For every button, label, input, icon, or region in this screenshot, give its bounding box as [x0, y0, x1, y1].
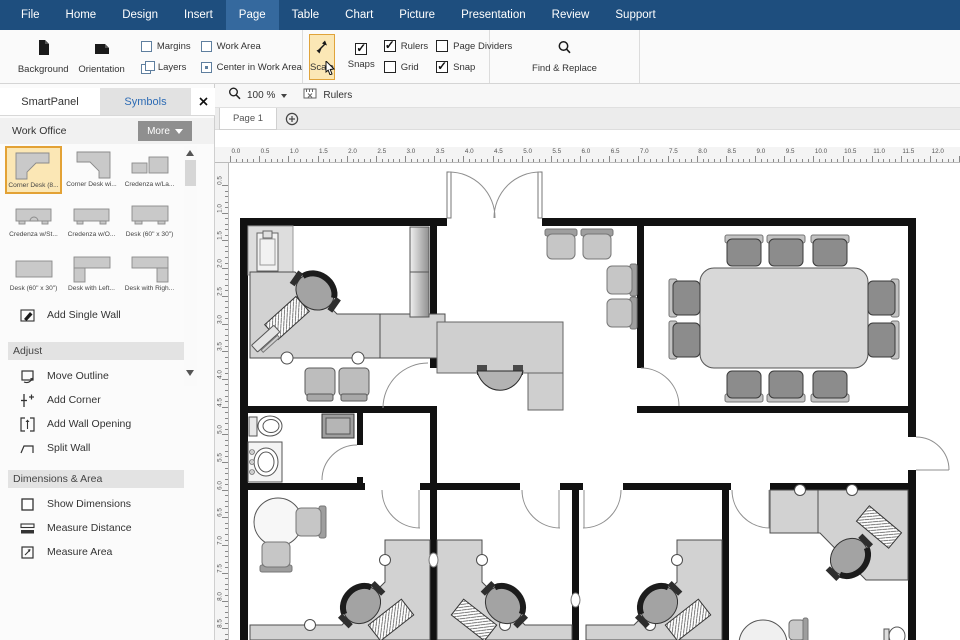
tab-smartpanel[interactable]: SmartPanel — [0, 88, 100, 115]
conference-chair — [767, 371, 805, 402]
conference-table — [700, 268, 868, 368]
symbol-desk-60x30-b[interactable]: Desk (60" x 30") — [5, 250, 62, 298]
ruler-tick — [222, 601, 229, 602]
zoom-level[interactable]: 100 % — [247, 90, 275, 101]
office-door-arc — [383, 363, 428, 408]
ruler-tick — [901, 156, 902, 163]
ruler-label: 10.0 — [815, 148, 827, 155]
office-top-left[interactable] — [248, 226, 445, 401]
ruler-tick — [259, 156, 260, 163]
tall-cabinet — [410, 272, 429, 317]
split-wall-button[interactable]: Split Wall — [0, 436, 215, 460]
ruler-label: 4.5 — [494, 148, 503, 155]
menu-page[interactable]: Page — [226, 0, 279, 30]
layers-button[interactable]: Layers — [141, 60, 191, 75]
symbol-credenza-lateral[interactable]: Credenza w/La... — [121, 146, 178, 194]
ruler-label: 7.5 — [669, 148, 678, 155]
grid-toggle[interactable]: Grid — [384, 60, 428, 75]
fixture — [884, 629, 889, 640]
rulers-toggle[interactable]: Rulers — [384, 39, 428, 54]
symbol-thumb — [71, 199, 113, 231]
ruler-tick — [784, 156, 785, 163]
search-icon — [557, 40, 572, 60]
zoom-toolbar: 100 % Rulers — [215, 84, 960, 108]
page-tab-bar: Page 1 — [215, 108, 960, 130]
room3-door-arc — [583, 490, 621, 528]
ruler-tick — [318, 156, 319, 163]
reception-desk — [437, 322, 563, 373]
ruler-label: 8.0 — [698, 148, 707, 155]
reception-area[interactable] — [437, 229, 637, 410]
ruler-label: 11.5 — [902, 148, 914, 155]
conference-chair — [811, 371, 849, 402]
room4-door-arc — [732, 490, 770, 528]
zoom-magnifier-icon[interactable] — [228, 87, 241, 105]
measure-area-icon — [20, 545, 35, 560]
office-bottom-right-extras[interactable] — [739, 618, 905, 640]
page-tab-1[interactable]: Page 1 — [219, 108, 277, 130]
menu-table[interactable]: Table — [279, 0, 333, 30]
room1-door-arc — [382, 490, 420, 528]
symbol-thumb — [129, 253, 171, 285]
waiting-chair — [607, 264, 637, 296]
ruler-tick — [580, 156, 581, 163]
toilet — [258, 416, 282, 436]
ruler-label: 10.5 — [844, 148, 856, 155]
conference-chair — [725, 235, 763, 266]
drawing-canvas-area: 100 % Rulers Page 1 0.00.51.01.52.02.53.… — [215, 84, 960, 640]
measure-distance-button[interactable]: Measure Distance — [0, 516, 215, 540]
ruler-tick — [930, 156, 931, 163]
menu-support[interactable]: Support — [602, 0, 668, 30]
rulers-checkbox[interactable] — [384, 40, 396, 52]
ruler-tick — [222, 268, 229, 269]
rulers-toolbar-label[interactable]: Rulers — [323, 90, 352, 101]
chair — [296, 506, 326, 538]
left-panel: SmartPanel Symbols Work Office More Corn… — [0, 84, 215, 640]
adjust-section-header: Adjust — [8, 342, 184, 360]
round-table — [739, 620, 787, 640]
ruler-label: 6.0 — [582, 148, 591, 155]
ruler-tick — [551, 156, 552, 163]
ruler-label: 1.0 — [290, 148, 299, 155]
center-in-work-area-icon — [201, 62, 212, 73]
symbol-thumb — [129, 199, 171, 231]
split-wall-icon — [20, 441, 35, 456]
ruler-tick — [726, 156, 727, 163]
layers-icon — [141, 61, 153, 73]
ruler-label: 2.5 — [377, 148, 386, 155]
symbol-corner-desk[interactable]: Corner Desk (8... — [5, 146, 62, 194]
guest-chair[interactable] — [305, 368, 335, 401]
show-dimensions-button[interactable]: Show Dimensions — [0, 492, 215, 516]
double-door-left-arc — [449, 172, 495, 218]
ruler-label: 7.0 — [640, 148, 649, 155]
snap-checkbox[interactable] — [436, 61, 448, 73]
ruler-label: 4.0 — [465, 148, 474, 155]
conference-chair — [811, 235, 849, 266]
room2-door-arc — [522, 490, 560, 528]
grid-checkbox[interactable] — [384, 61, 396, 73]
ruler-tick — [843, 156, 844, 163]
double-door-right-arc — [494, 172, 540, 218]
orientation-label: Orientation — [78, 64, 124, 75]
orientation-icon — [93, 39, 111, 61]
move-outline-button[interactable]: Move Outline — [0, 364, 215, 388]
ruler-tick — [288, 156, 289, 163]
ruler-tick — [222, 240, 229, 241]
symbol-thumb — [13, 150, 55, 182]
menu-picture[interactable]: Picture — [386, 0, 448, 30]
ruler-tick — [609, 156, 610, 163]
waiting-chair — [581, 229, 613, 259]
ruler-tick — [222, 379, 229, 380]
ruler-tick — [434, 156, 435, 163]
scale-button[interactable]: Scale — [309, 34, 335, 80]
toilet-tank — [249, 417, 257, 436]
conference-room[interactable] — [669, 235, 899, 402]
conference-chair — [767, 235, 805, 266]
ruler-label: 5.5 — [552, 148, 561, 155]
menu-review[interactable]: Review — [539, 0, 603, 30]
more-button[interactable]: More — [138, 121, 192, 141]
menu-design[interactable]: Design — [109, 0, 171, 30]
symbol-desk-left-return[interactable]: Desk with Left... — [63, 250, 120, 298]
wall-grommet — [429, 553, 438, 567]
symbol-thumb — [13, 199, 55, 231]
double-door-left-panel — [447, 172, 451, 218]
floor-plan[interactable] — [229, 163, 960, 640]
rulers-toggle-icon[interactable] — [303, 87, 317, 105]
ruler-tick — [638, 156, 639, 163]
ruler-label: 9.5 — [786, 148, 795, 155]
add-corner-button[interactable]: Add Corner — [0, 388, 215, 412]
symbol-scrollbar[interactable] — [184, 146, 197, 386]
conference-chair — [868, 321, 899, 359]
symbol-corner-desk-2[interactable]: Corner Desk wi... — [63, 146, 120, 194]
find-replace-button[interactable]: Find & Replace — [520, 34, 610, 80]
conference-chair — [669, 279, 700, 317]
conference-chair — [725, 371, 763, 402]
pencil-wall-icon — [20, 308, 35, 323]
waiting-chair — [607, 297, 637, 329]
panel-tab-bar: SmartPanel Symbols — [0, 88, 215, 116]
ruler-tick — [222, 545, 229, 546]
symbol-thumb — [71, 253, 113, 285]
ribbon-group-page-setup: Background Orientation Margins Layers — [0, 30, 303, 83]
ruler-tick — [222, 434, 229, 435]
meeting-room-small[interactable] — [254, 498, 326, 572]
scrollbar-thumb[interactable] — [185, 160, 196, 186]
smartdraw-app: File Home Design Insert Page Table Chart… — [0, 0, 960, 640]
ruler-tick — [376, 156, 377, 163]
page-dividers-checkbox[interactable] — [436, 40, 448, 52]
fixture — [889, 627, 905, 640]
ruler-tick — [872, 156, 873, 163]
reception-desk-return — [528, 373, 563, 410]
menu-home[interactable]: Home — [53, 0, 110, 30]
double-door-right-panel — [538, 172, 542, 218]
dimensions-section-header: Dimensions & Area — [8, 470, 184, 488]
menu-presentation[interactable]: Presentation — [448, 0, 539, 30]
v-ruler: 0.51.01.52.02.53.03.54.04.55.05.56.06.57… — [215, 163, 229, 640]
add-page-icon[interactable] — [285, 112, 299, 131]
snaps-checkbox[interactable] — [355, 43, 367, 55]
ruler-label: 5.0 — [523, 148, 532, 155]
symbol-thumb — [129, 149, 171, 181]
ruler-tick — [222, 213, 229, 214]
symbol-desk-60x30[interactable]: Desk (60" x 30") — [121, 196, 178, 244]
ruler-label: 0.5 — [261, 148, 270, 155]
margins-icon — [141, 41, 152, 52]
ruler-tick — [463, 156, 464, 163]
measure-distance-icon — [20, 521, 35, 536]
scale-icon — [315, 40, 329, 59]
close-icon — [199, 93, 208, 111]
ruler-tick — [222, 185, 229, 186]
add-wall-opening-button[interactable]: Add Wall Opening — [0, 412, 215, 436]
measure-area-button[interactable]: Measure Area — [0, 540, 215, 564]
panel-close-button[interactable] — [191, 88, 215, 115]
conference-door-arc — [641, 368, 679, 406]
ruler-label: 11.0 — [873, 148, 885, 155]
ruler-tick — [222, 517, 229, 518]
tall-cabinet — [410, 227, 429, 272]
ribbon: Background Orientation Margins Layers — [0, 30, 960, 84]
reception-chair — [477, 371, 523, 390]
ruler-tick — [405, 156, 406, 163]
menu-file[interactable]: File — [8, 0, 53, 30]
symbol-thumb — [13, 253, 55, 285]
margins-button[interactable]: Margins — [141, 39, 191, 54]
ruler-tick — [697, 156, 698, 163]
ruler-label: 8.5 — [727, 148, 736, 155]
menu-bar: File Home Design Insert Page Table Chart… — [0, 0, 960, 30]
ruler-tick — [755, 156, 756, 163]
snaps-button[interactable]: Snaps — [348, 43, 375, 70]
ruler-tick — [222, 407, 229, 408]
conference-chair — [868, 279, 899, 317]
h-ruler: 0.00.51.01.52.02.53.03.54.04.55.05.56.06… — [215, 147, 960, 163]
ruler-label: 6.5 — [611, 148, 620, 155]
ruler-label: 2.0 — [348, 148, 357, 155]
add-corner-icon — [20, 393, 35, 408]
ruler-label: 9.0 — [757, 148, 766, 155]
background-icon — [35, 39, 51, 61]
ruler-tick — [222, 351, 229, 352]
scroll-up-icon[interactable] — [186, 150, 194, 156]
center-in-work-area-button[interactable]: Center in Work Area — [201, 60, 302, 75]
ruler-tick — [222, 296, 229, 297]
background-button[interactable]: Background — [14, 34, 72, 80]
ruler-tick — [222, 573, 229, 574]
add-wall-opening-icon — [20, 417, 35, 432]
ruler-tick — [222, 490, 229, 491]
ruler-tick — [230, 156, 231, 163]
zoom-dropdown-icon[interactable] — [281, 94, 287, 98]
exit-door-arc — [916, 437, 949, 470]
wall-grommet — [571, 593, 580, 607]
ruler-tick — [222, 628, 229, 629]
round-table — [254, 498, 302, 546]
symbol-thumb — [71, 149, 113, 181]
ruler-label: 3.0 — [407, 148, 416, 155]
chair — [260, 542, 292, 572]
ruler-tick — [222, 324, 229, 325]
conference-chair — [669, 321, 700, 359]
menu-chart[interactable]: Chart — [332, 0, 386, 30]
work-area-icon — [201, 41, 212, 52]
add-single-wall-button[interactable]: Add Single Wall — [0, 304, 215, 326]
ribbon-group-view: Scale Snaps Rulers Grid — [303, 30, 490, 83]
show-dimensions-icon — [20, 497, 35, 512]
ruler-label: 1.5 — [319, 148, 328, 155]
menu-insert[interactable]: Insert — [171, 0, 226, 30]
ruler-tick — [813, 156, 814, 163]
symbol-credenza-open[interactable]: Credenza w/O... — [63, 196, 120, 244]
symbol-desk-right-return[interactable]: Desk with Righ... — [121, 250, 178, 298]
ruler-tick — [347, 156, 348, 163]
orientation-button[interactable]: Orientation — [72, 34, 130, 80]
ruler-tick — [522, 156, 523, 163]
background-label: Background — [18, 64, 69, 75]
ruler-label: 3.5 — [436, 148, 445, 155]
symbol-library-row: Work Office More — [0, 118, 214, 144]
ribbon-group-find: Find & Replace — [490, 30, 640, 83]
symbol-credenza-storage[interactable]: Credenza w/St... — [5, 196, 62, 244]
bathroom-door-arc — [322, 445, 357, 480]
move-outline-icon — [20, 369, 35, 384]
guest-chair[interactable] — [339, 368, 369, 401]
ruler-label: 0.0 — [232, 148, 241, 155]
ruler-tick — [668, 156, 669, 163]
work-area-button[interactable]: Work Area — [201, 39, 302, 54]
ruler-label: 12.0 — [932, 148, 944, 155]
mouse-cursor-icon — [325, 61, 337, 80]
waiting-chair — [545, 229, 577, 259]
ruler-tick — [222, 462, 229, 463]
tab-symbols[interactable]: Symbols — [100, 88, 191, 115]
library-name: Work Office — [12, 125, 138, 137]
bathroom[interactable] — [248, 414, 354, 482]
ruler-tick — [493, 156, 494, 163]
